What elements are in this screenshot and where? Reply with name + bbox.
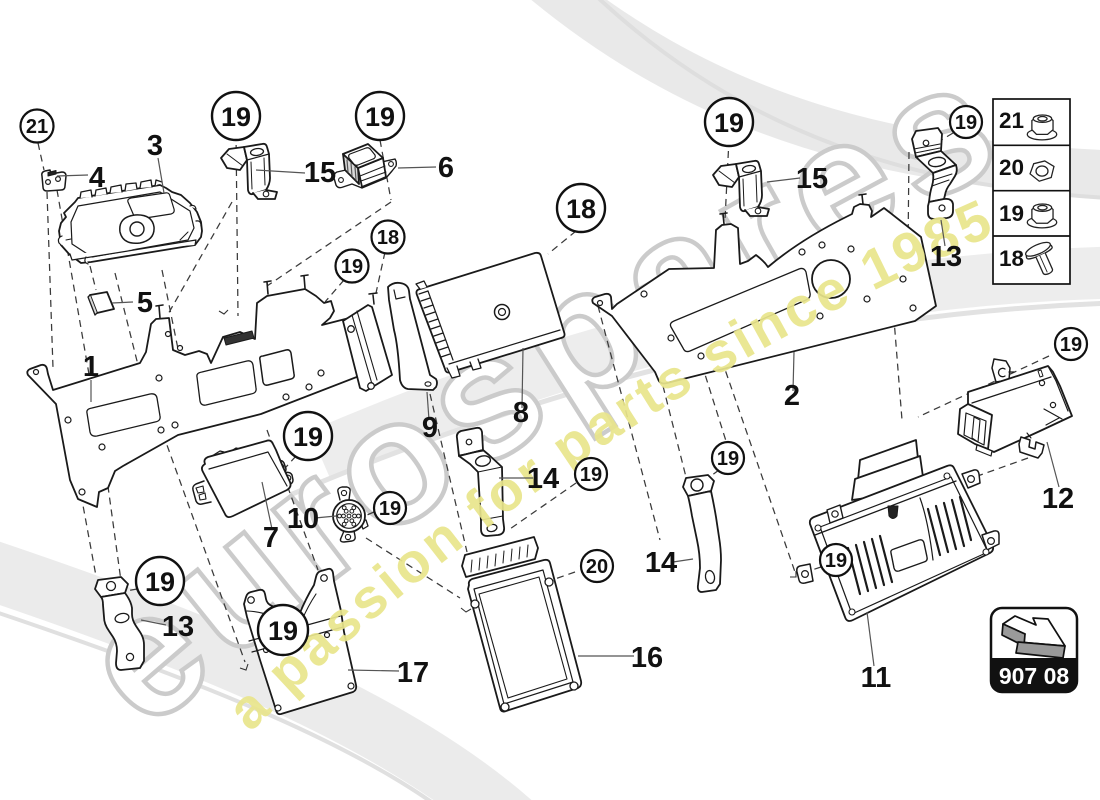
svg-text:19: 19 [268, 616, 298, 646]
svg-text:9: 9 [422, 412, 438, 444]
svg-text:18: 18 [566, 194, 596, 224]
svg-text:11: 11 [861, 662, 892, 694]
svg-text:18: 18 [999, 246, 1024, 271]
svg-text:19: 19 [293, 422, 323, 452]
svg-text:21: 21 [999, 108, 1024, 133]
svg-text:19: 19 [714, 108, 744, 138]
svg-text:4: 4 [89, 162, 105, 194]
svg-text:2: 2 [784, 380, 800, 412]
svg-text:19: 19 [341, 256, 363, 278]
svg-text:19: 19 [379, 498, 401, 520]
svg-text:7: 7 [263, 522, 279, 554]
svg-text:15: 15 [304, 157, 336, 189]
svg-text:10: 10 [287, 503, 319, 535]
svg-text:907 08: 907 08 [999, 663, 1070, 689]
svg-text:19: 19 [955, 112, 977, 134]
svg-text:19: 19 [221, 102, 251, 132]
svg-text:19: 19 [999, 201, 1024, 226]
svg-text:5: 5 [137, 287, 153, 319]
svg-text:19: 19 [365, 102, 395, 132]
svg-text:14: 14 [527, 463, 559, 495]
svg-text:13: 13 [930, 241, 962, 273]
svg-text:6: 6 [438, 152, 454, 184]
svg-text:20: 20 [999, 155, 1024, 180]
svg-text:19: 19 [717, 448, 739, 470]
svg-text:13: 13 [162, 611, 194, 643]
svg-text:14: 14 [645, 547, 677, 579]
svg-text:19: 19 [825, 550, 847, 572]
svg-text:19: 19 [145, 567, 175, 597]
svg-text:3: 3 [147, 130, 163, 162]
svg-text:21: 21 [26, 116, 48, 138]
svg-text:20: 20 [586, 556, 608, 578]
svg-text:1: 1 [83, 351, 99, 383]
svg-text:18: 18 [377, 227, 399, 249]
svg-text:15: 15 [796, 163, 828, 195]
svg-text:8: 8 [513, 397, 529, 429]
svg-text:19: 19 [1060, 334, 1082, 356]
svg-text:17: 17 [397, 657, 429, 689]
svg-text:16: 16 [631, 642, 663, 674]
svg-text:12: 12 [1042, 483, 1074, 515]
svg-text:19: 19 [580, 464, 602, 486]
